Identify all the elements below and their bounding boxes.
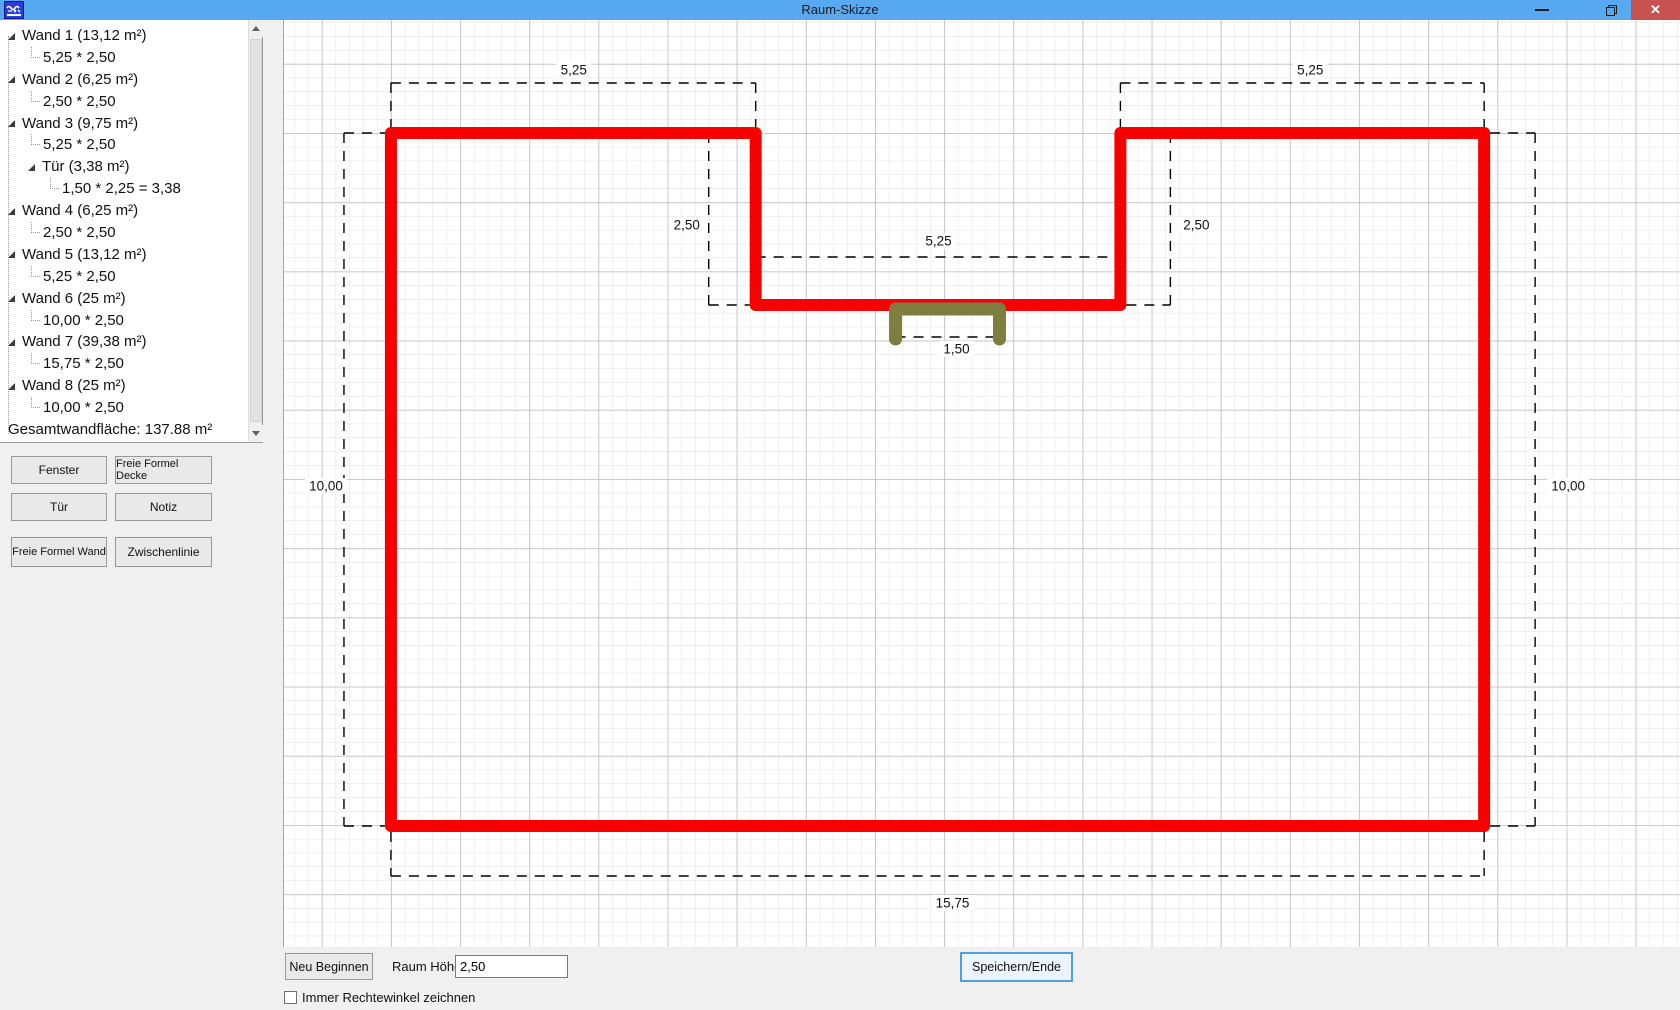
tree-elbow-connector	[50, 178, 59, 189]
wand3-dim-label: 5,25	[925, 233, 951, 248]
wall-tree-panel[interactable]: Wand 1 (13,12 m²)5,25 * 2,50Wand 2 (6,25…	[0, 20, 263, 443]
restore-icon	[1606, 5, 1617, 16]
wand1-dim-label: 5,25	[561, 62, 587, 77]
app-window: Raum-Skizze ✕ Wand 1 (13,12 m²)5,25 * 2,…	[0, 0, 1680, 1010]
tree-item[interactable]: Wand 3 (9,75 m²)	[0, 113, 262, 135]
restore-button[interactable]	[1590, 0, 1632, 20]
tree-item[interactable]: Wand 1 (13,12 m²)	[0, 25, 262, 47]
tree-item-label: 10,00 * 2,50	[43, 312, 124, 329]
notiz-button[interactable]: Notiz	[115, 493, 212, 521]
expander-icon[interactable]	[8, 251, 15, 258]
window-title: Raum-Skizze	[0, 2, 1680, 17]
tree-elbow-connector	[31, 266, 40, 277]
tree-elbow-connector	[31, 397, 40, 408]
scroll-down-icon	[252, 431, 260, 436]
tree-elbow-connector	[31, 310, 40, 321]
tree-item-label: 5,25 * 2,50	[43, 49, 116, 66]
tree-item[interactable]: Wand 7 (39,38 m²)	[0, 331, 262, 353]
title-bar: Raum-Skizze ✕	[0, 0, 1680, 20]
tree-item-label: Gesamtwandfläche: 137.88 m²	[8, 421, 212, 438]
wand2-dim-label: 2,50	[674, 217, 700, 232]
scroll-up-button[interactable]	[249, 20, 263, 37]
zwischenlinie-button[interactable]: Zwischenlinie	[115, 537, 212, 567]
scroll-up-icon	[252, 26, 260, 31]
tree-item-label: Wand 2 (6,25 m²)	[22, 71, 138, 88]
tree-elbow-connector	[31, 222, 40, 233]
expander-icon[interactable]	[8, 33, 15, 40]
tree-item[interactable]: 10,00 * 2,50	[0, 397, 262, 419]
expander-icon[interactable]	[8, 120, 15, 127]
scrollbar-thumb[interactable]	[250, 39, 262, 422]
tree-scrollbar[interactable]	[248, 20, 262, 442]
freie-formel-decke-button[interactable]: Freie Formel Decke	[115, 456, 212, 484]
raum-hoehe-input[interactable]	[455, 955, 568, 978]
rechtwinkel-checkbox[interactable]	[284, 991, 297, 1004]
tree-item[interactable]: 15,75 * 2,50	[0, 353, 262, 375]
tree-elbow-connector	[31, 47, 40, 58]
tree-item[interactable]: 1,50 * 2,25 = 3,38	[0, 178, 262, 200]
tree-item[interactable]: 5,25 * 2,50	[0, 266, 262, 288]
neu-beginnen-button[interactable]: Neu Beginnen	[285, 953, 373, 980]
tree-item[interactable]: Wand 5 (13,12 m²)	[0, 244, 262, 266]
expander-icon[interactable]	[8, 76, 15, 83]
tree-elbow-connector	[31, 353, 40, 364]
tuer-button[interactable]: Tür	[11, 493, 107, 521]
tree-item-label: Wand 3 (9,75 m²)	[22, 115, 138, 132]
tree-item-label: 15,75 * 2,50	[43, 355, 124, 372]
close-button[interactable]: ✕	[1631, 0, 1680, 20]
tree-elbow-connector	[31, 91, 40, 102]
tree-item[interactable]: 2,50 * 2,50	[0, 91, 262, 113]
tree-item[interactable]: Wand 8 (25 m²)	[0, 375, 262, 397]
tree-item-label: Wand 7 (39,38 m²)	[22, 333, 147, 350]
close-icon: ✕	[1650, 2, 1661, 18]
bottom-bar: Neu Beginnen Speichern/Ende	[0, 947, 1680, 1010]
rechtwinkel-checkbox-label: Immer Rechtewinkel zeichnen	[302, 990, 475, 1005]
expander-icon[interactable]	[8, 208, 15, 215]
tree-item-label: 2,50 * 2,50	[43, 224, 116, 241]
wand6-dim-label: 10,00	[1551, 478, 1585, 493]
tree-item-label: 2,50 * 2,50	[43, 93, 116, 110]
scroll-down-button[interactable]	[249, 425, 263, 442]
tree-item-label: Wand 8 (25 m²)	[22, 377, 126, 394]
wand8-dim-label: 10,00	[309, 478, 343, 493]
expander-icon[interactable]	[8, 383, 15, 390]
tree-item-label: Wand 6 (25 m²)	[22, 290, 126, 307]
tree-item[interactable]: Tür (3,38 m²)	[0, 156, 262, 178]
expander-icon[interactable]	[28, 164, 35, 171]
tree-elbow-connector	[31, 134, 40, 145]
freie-formel-wand-button[interactable]: Freie Formel Wand	[11, 537, 107, 567]
tree-item-label: Wand 1 (13,12 m²)	[22, 27, 147, 44]
fenster-button[interactable]: Fenster	[11, 456, 107, 484]
tree-item-label: 10,00 * 2,50	[43, 399, 124, 416]
tree-item-label: 5,25 * 2,50	[43, 136, 116, 153]
tree-item[interactable]: Gesamtwandfläche: 137.88 m²	[0, 419, 262, 441]
tree-item-label: Tür (3,38 m²)	[42, 158, 130, 175]
tree-item[interactable]: 5,25 * 2,50	[0, 47, 262, 69]
room-sketch-canvas[interactable]: 5,252,505,252,505,2510,0015,7510,001,50	[283, 20, 1680, 947]
speichern-ende-button[interactable]: Speichern/Ende	[960, 952, 1073, 982]
raum-hoehe-label: Raum Höhe	[392, 959, 461, 974]
wand7-dim-label: 15,75	[936, 895, 970, 910]
tree-item[interactable]: Wand 4 (6,25 m²)	[0, 200, 262, 222]
expander-icon[interactable]	[8, 295, 15, 302]
tree-item[interactable]: 10,00 * 2,50	[0, 310, 262, 332]
tree-item-label: Wand 4 (6,25 m²)	[22, 202, 138, 219]
tree-item-label: 1,50 * 2,25 = 3,38	[62, 180, 181, 197]
tree-item[interactable]: Wand 2 (6,25 m²)	[0, 69, 262, 91]
minimize-button[interactable]	[1522, 0, 1562, 20]
tuer-dim-label: 1,50	[943, 341, 969, 356]
grid-major-lines	[284, 20, 1680, 947]
wand4-dim-label: 2,50	[1183, 217, 1209, 232]
expander-icon[interactable]	[8, 339, 15, 346]
tree-item[interactable]: 2,50 * 2,50	[0, 222, 262, 244]
room-sketch-drawing[interactable]: 5,252,505,252,505,2510,0015,7510,001,50	[284, 20, 1680, 947]
tree-item-label: 5,25 * 2,50	[43, 268, 116, 285]
tree-item[interactable]: 5,25 * 2,50	[0, 134, 262, 156]
tree-item[interactable]: Wand 6 (25 m²)	[0, 288, 262, 310]
minimize-icon	[1535, 9, 1549, 11]
wand5-dim-label: 5,25	[1297, 62, 1323, 77]
tree-item-label: Wand 5 (13,12 m²)	[22, 246, 147, 263]
